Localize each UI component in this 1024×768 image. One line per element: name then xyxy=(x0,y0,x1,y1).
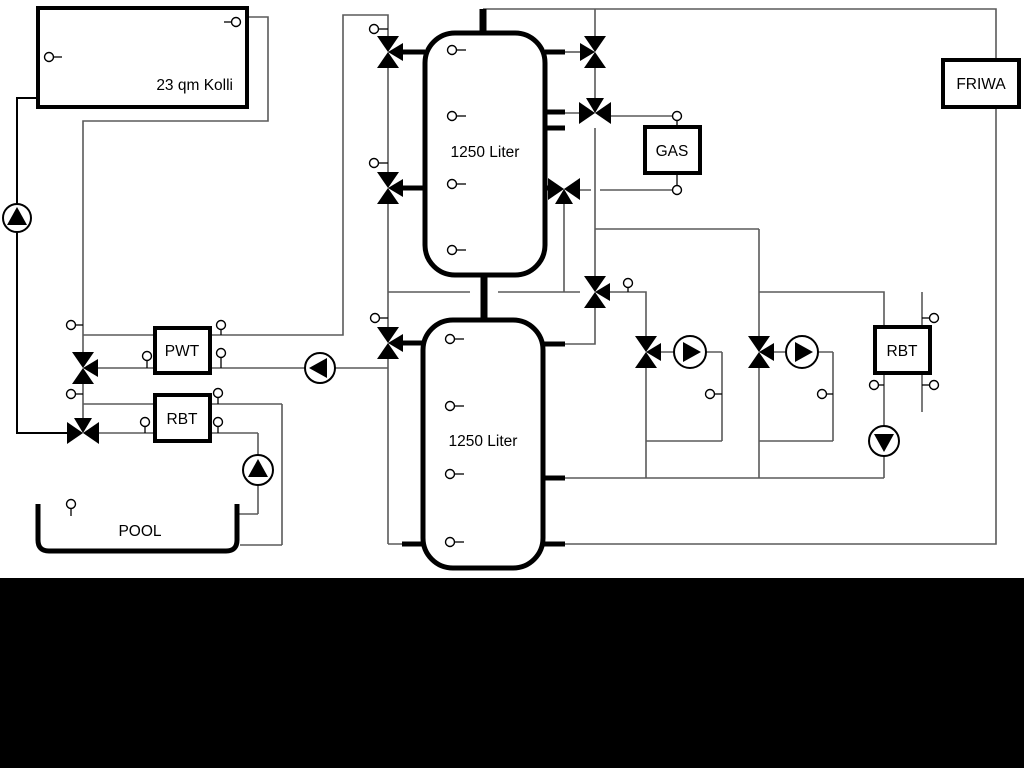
pipe-bottom-collector-line xyxy=(565,456,884,478)
pipe-rbt-right-feed xyxy=(759,292,884,426)
three-way-valve-gas-return xyxy=(548,178,580,204)
sensor-pwt-top-right xyxy=(217,321,226,336)
pump-friwa-circulation xyxy=(869,426,899,456)
pipe-loop2 xyxy=(759,352,833,478)
sensor-rbt-bottom-right xyxy=(214,418,223,434)
sensor-pool xyxy=(67,500,76,517)
sensor-loop2 xyxy=(818,390,834,399)
sensor-rbt-right-feed xyxy=(870,381,885,390)
pipe-rbt-lower xyxy=(99,433,258,514)
pwt-label: PWT xyxy=(165,343,200,360)
pool-label: POOL xyxy=(118,523,161,540)
collector-label: 23 qm Kolli xyxy=(156,77,233,94)
pump-loop2 xyxy=(786,336,818,368)
sensor-rbt-bottom-left xyxy=(141,418,150,434)
rbt-right-label: RBT xyxy=(887,343,919,360)
three-way-valve-tank2-left xyxy=(377,327,403,359)
sensor-gas-return xyxy=(673,173,682,195)
three-way-valve-tank1-left-upper xyxy=(377,36,403,68)
pipe-valveG-to-tank2 xyxy=(565,308,595,344)
three-way-valve-loop1 xyxy=(635,336,661,368)
pipe-mix-header-right xyxy=(610,292,646,336)
three-way-valve-tank1-left-lower xyxy=(377,172,403,204)
schematic-canvas: 23 qm Kolli 1250 Liter 1250 Liter GAS PW… xyxy=(0,0,1024,768)
pump-solar-secondary xyxy=(305,353,335,383)
sensor-mix-header xyxy=(624,279,633,293)
sensor-gas-flow xyxy=(673,112,682,128)
pump-loop1 xyxy=(674,336,706,368)
sensor-valve-chain-2 xyxy=(370,159,389,168)
pipe-loop1 xyxy=(646,352,722,478)
sensor-rbt-right-sec-2 xyxy=(922,381,939,390)
sensor-valve-chain-3 xyxy=(371,314,389,323)
tank-1-label: 1250 Liter xyxy=(451,144,520,161)
gas-label: GAS xyxy=(656,143,689,160)
pipe-solar-primary xyxy=(17,98,67,433)
pipe-branch-to-loop2 xyxy=(595,229,759,336)
hydraulic-schematic: 23 qm Kolli 1250 Liter 1250 Liter GAS PW… xyxy=(0,0,1024,768)
bottom-letterbox-bar xyxy=(0,578,1024,768)
pump-solar-primary xyxy=(3,204,31,232)
pipe-valveL-down-to-tank2 xyxy=(388,359,402,544)
pump-pool xyxy=(243,455,273,485)
three-way-valve-gas-flow xyxy=(579,98,611,124)
sensor-valve-chain-1 xyxy=(370,25,389,34)
tank-2-label: 1250 Liter xyxy=(449,433,518,450)
sensor-loop1 xyxy=(706,390,723,399)
three-way-valve-loop2 xyxy=(748,336,774,368)
pipe-top-header-friwa-return xyxy=(483,9,996,544)
rbt-label: RBT xyxy=(167,411,199,428)
sensor-rbt-top-right xyxy=(214,389,223,405)
three-way-valve-pool xyxy=(67,418,99,444)
sensor-rbt-right-sec-1 xyxy=(922,314,939,323)
sensor-pwt-left xyxy=(67,321,84,330)
three-way-valve-tank1-top-right xyxy=(580,36,606,68)
three-way-valve-pwt xyxy=(72,352,98,384)
sensor-pwt-bottom-right xyxy=(217,349,226,369)
sensor-rbt-left xyxy=(67,390,84,399)
three-way-valve-mix-header xyxy=(584,276,610,308)
friwa-label: FRIWA xyxy=(956,76,1006,93)
sensor-pwt-bottom-left xyxy=(143,352,152,369)
